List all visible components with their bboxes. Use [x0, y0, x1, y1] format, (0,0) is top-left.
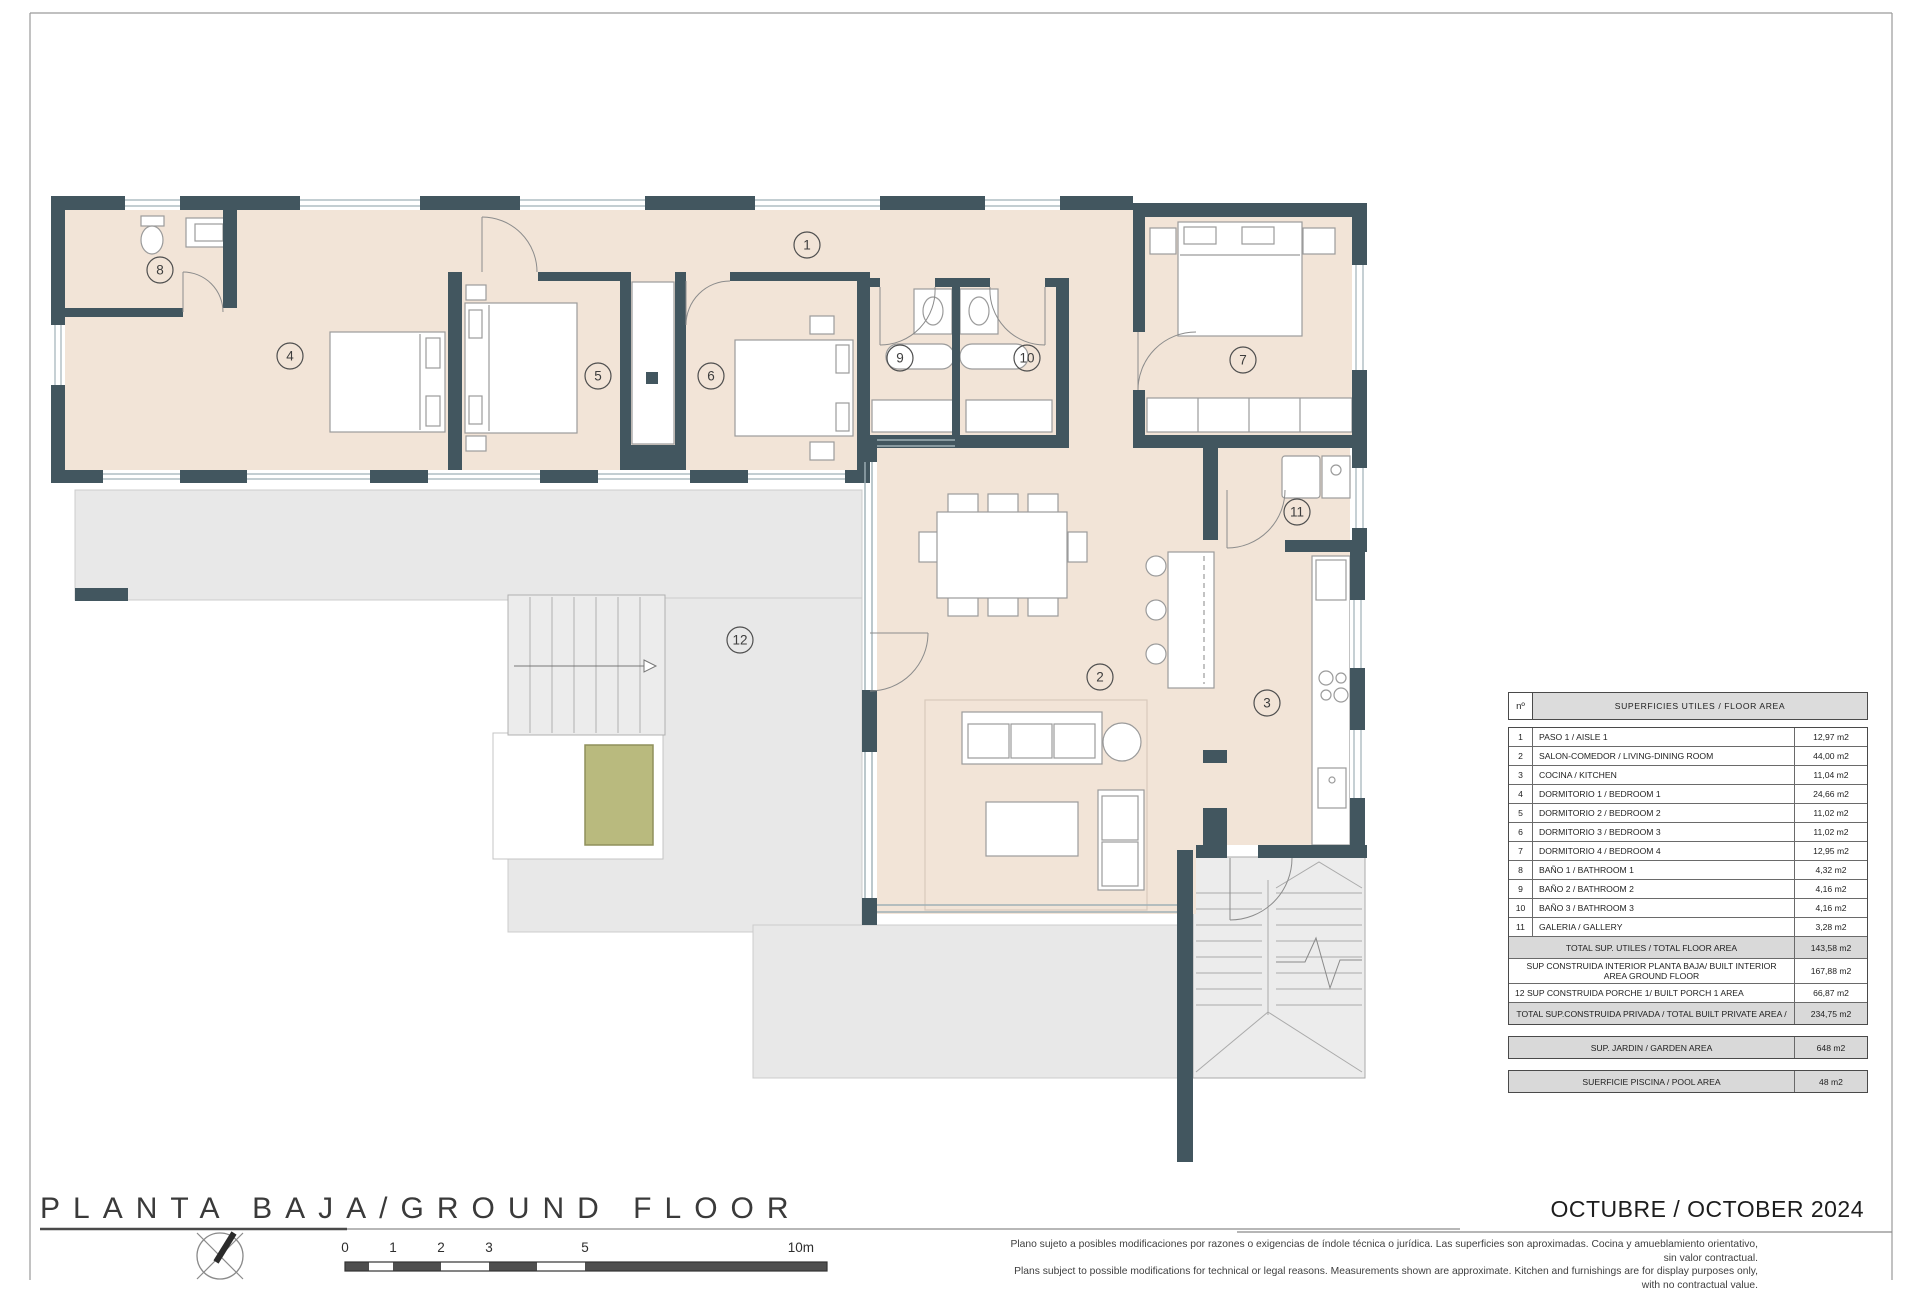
table-row: SUERFICIE PISCINA / POOL AREA48 m2: [1509, 1071, 1867, 1092]
row-number: 11: [1509, 918, 1533, 936]
svg-text:4: 4: [286, 349, 294, 364]
row-label: GALERIA / GALLERY: [1533, 920, 1794, 934]
table-row: 6DORMITORIO 3 / BEDROOM 311,02 m2: [1509, 822, 1867, 841]
scale-bar: 0123510m: [341, 1240, 827, 1271]
row-label: SUP. JARDIN / GARDEN AREA: [1509, 1041, 1794, 1055]
table-row: 3COCINA / KITCHEN11,04 m2: [1509, 765, 1867, 784]
row-label: DORMITORIO 2 / BEDROOM 2: [1533, 806, 1794, 820]
table-row: 12 SUP CONSTRUIDA PORCHE 1/ BUILT PORCH …: [1509, 983, 1867, 1002]
compass-icon: [197, 1233, 243, 1279]
row-value: 24,66 m2: [1794, 785, 1867, 803]
row-label: BAÑO 3 / BATHROOM 3: [1533, 901, 1794, 915]
row-label: SUP CONSTRUIDA INTERIOR PLANTA BAJA/ BUI…: [1509, 959, 1794, 983]
page-title: PLANTA BAJA/GROUND FLOOR: [40, 1192, 802, 1226]
table-header-num: nº: [1509, 693, 1533, 719]
disclaimer-line-en: Plans subject to possible modifications …: [998, 1265, 1758, 1292]
dining-table: [937, 512, 1067, 598]
table-row: TOTAL SUP.CONSTRUIDA PRIVADA / TOTAL BUI…: [1509, 1002, 1867, 1024]
row-value: 48 m2: [1794, 1071, 1867, 1092]
floor-area-table: nº SUPERFICIES UTILES / FLOOR AREA 1PASO…: [1508, 692, 1868, 1093]
scale-label: 5: [581, 1240, 589, 1255]
date-label: OCTUBRE / OCTOBER 2024: [1551, 1196, 1865, 1223]
row-label: DORMITORIO 3 / BEDROOM 3: [1533, 825, 1794, 839]
exterior-stairs: [1193, 857, 1365, 1078]
row-value: 4,32 m2: [1794, 861, 1867, 879]
plan-sheet: 123456789101112 0123510m PLANTA BAJA/GRO…: [0, 0, 1920, 1280]
table-header: nº SUPERFICIES UTILES / FLOOR AREA: [1508, 692, 1868, 720]
svg-text:6: 6: [707, 369, 715, 384]
table-row: 11GALERIA / GALLERY3,28 m2: [1509, 917, 1867, 936]
row-number: 1: [1509, 728, 1533, 746]
scale-label: 0: [341, 1240, 349, 1255]
kitchen-island: [1168, 552, 1214, 688]
row-value: 234,75 m2: [1794, 1003, 1867, 1024]
toilet: [141, 216, 164, 226]
row-number: 4: [1509, 785, 1533, 803]
table-row: 10BAÑO 3 / BATHROOM 34,16 m2: [1509, 898, 1867, 917]
row-label: TOTAL SUP. UTILES / TOTAL FLOOR AREA: [1509, 941, 1794, 955]
row-value: 4,16 m2: [1794, 880, 1867, 898]
table-row: SUP. JARDIN / GARDEN AREA648 m2: [1509, 1037, 1867, 1058]
table-extra-boxes: SUP. JARDIN / GARDEN AREA648 m2SUERFICIE…: [1508, 1025, 1868, 1093]
svg-text:9: 9: [896, 351, 904, 366]
table-row: 8BAÑO 1 / BATHROOM 14,32 m2: [1509, 860, 1867, 879]
coffee-table: [986, 802, 1078, 856]
svg-text:1: 1: [803, 238, 811, 253]
table-row: 1PASO 1 / AISLE 112,97 m2: [1509, 728, 1867, 746]
table-row: 5DORMITORIO 2 / BEDROOM 211,02 m2: [1509, 803, 1867, 822]
row-value: 11,02 m2: [1794, 823, 1867, 841]
svg-text:7: 7: [1239, 353, 1247, 368]
table-row: 9BAÑO 2 / BATHROOM 24,16 m2: [1509, 879, 1867, 898]
row-label: TOTAL SUP.CONSTRUIDA PRIVADA / TOTAL BUI…: [1509, 1007, 1794, 1021]
svg-text:2: 2: [1096, 670, 1104, 685]
row-label: DORMITORIO 4 / BEDROOM 4: [1533, 844, 1794, 858]
row-value: 4,16 m2: [1794, 899, 1867, 917]
svg-text:3: 3: [1263, 696, 1271, 711]
scale-label: 3: [485, 1240, 493, 1255]
row-number: 10: [1509, 899, 1533, 917]
table-extra-box: SUP. JARDIN / GARDEN AREA648 m2: [1508, 1036, 1868, 1059]
table-row: 7DORMITORIO 4 / BEDROOM 412,95 m2: [1509, 841, 1867, 860]
disclaimer-text: Plano sujeto a posibles modificaciones p…: [998, 1238, 1758, 1292]
row-value: 44,00 m2: [1794, 747, 1867, 765]
row-value: 143,58 m2: [1794, 937, 1867, 958]
table-row: 4DORMITORIO 1 / BEDROOM 124,66 m2: [1509, 784, 1867, 803]
row-number: 8: [1509, 861, 1533, 879]
svg-text:11: 11: [1290, 505, 1304, 520]
row-label: BAÑO 2 / BATHROOM 2: [1533, 882, 1794, 896]
row-number: 6: [1509, 823, 1533, 841]
scale-label: 1: [389, 1240, 397, 1255]
side-table: [1103, 723, 1141, 761]
row-value: 11,02 m2: [1794, 804, 1867, 822]
row-number: 2: [1509, 747, 1533, 765]
row-value: 648 m2: [1794, 1037, 1867, 1058]
table-row: SUP CONSTRUIDA INTERIOR PLANTA BAJA/ BUI…: [1509, 958, 1867, 983]
table-header-title: SUPERFICIES UTILES / FLOOR AREA: [1533, 693, 1867, 719]
row-value: 3,28 m2: [1794, 918, 1867, 936]
row-value: 11,04 m2: [1794, 766, 1867, 784]
row-number: 7: [1509, 842, 1533, 860]
table-row: 2SALON-COMEDOR / LIVING-DINING ROOM44,00…: [1509, 746, 1867, 765]
bed: [735, 340, 853, 436]
table-row: TOTAL SUP. UTILES / TOTAL FLOOR AREA143,…: [1509, 936, 1867, 958]
svg-text:5: 5: [594, 369, 602, 384]
row-label: COCINA / KITCHEN: [1533, 768, 1794, 782]
scale-label: 2: [437, 1240, 445, 1255]
row-value: 12,97 m2: [1794, 728, 1867, 746]
gallery-sink: [1322, 456, 1350, 498]
svg-text:10: 10: [1019, 351, 1034, 366]
svg-text:12: 12: [732, 633, 747, 648]
svg-text:8: 8: [156, 263, 164, 278]
row-label: SALON-COMEDOR / LIVING-DINING ROOM: [1533, 749, 1794, 763]
row-label: BAÑO 1 / BATHROOM 1: [1533, 863, 1794, 877]
row-value: 12,95 m2: [1794, 842, 1867, 860]
table-main-box: 1PASO 1 / AISLE 112,97 m22SALON-COMEDOR …: [1508, 727, 1868, 1025]
terrace-stairs: [508, 595, 665, 735]
row-label: 12 SUP CONSTRUIDA PORCHE 1/ BUILT PORCH …: [1509, 986, 1794, 1000]
row-label: PASO 1 / AISLE 1: [1533, 730, 1794, 744]
row-number: 3: [1509, 766, 1533, 784]
row-label: DORMITORIO 1 / BEDROOM 1: [1533, 787, 1794, 801]
row-number: 9: [1509, 880, 1533, 898]
row-label: SUERFICIE PISCINA / POOL AREA: [1509, 1075, 1794, 1089]
row-value: 167,88 m2: [1794, 959, 1867, 983]
pool: [493, 733, 663, 859]
row-value: 66,87 m2: [1794, 984, 1867, 1002]
scale-label: 10m: [788, 1240, 814, 1255]
disclaimer-line-es: Plano sujeto a posibles modificaciones p…: [998, 1238, 1758, 1265]
table-extra-box: SUERFICIE PISCINA / POOL AREA48 m2: [1508, 1070, 1868, 1093]
washer: [1282, 456, 1320, 498]
row-number: 5: [1509, 804, 1533, 822]
